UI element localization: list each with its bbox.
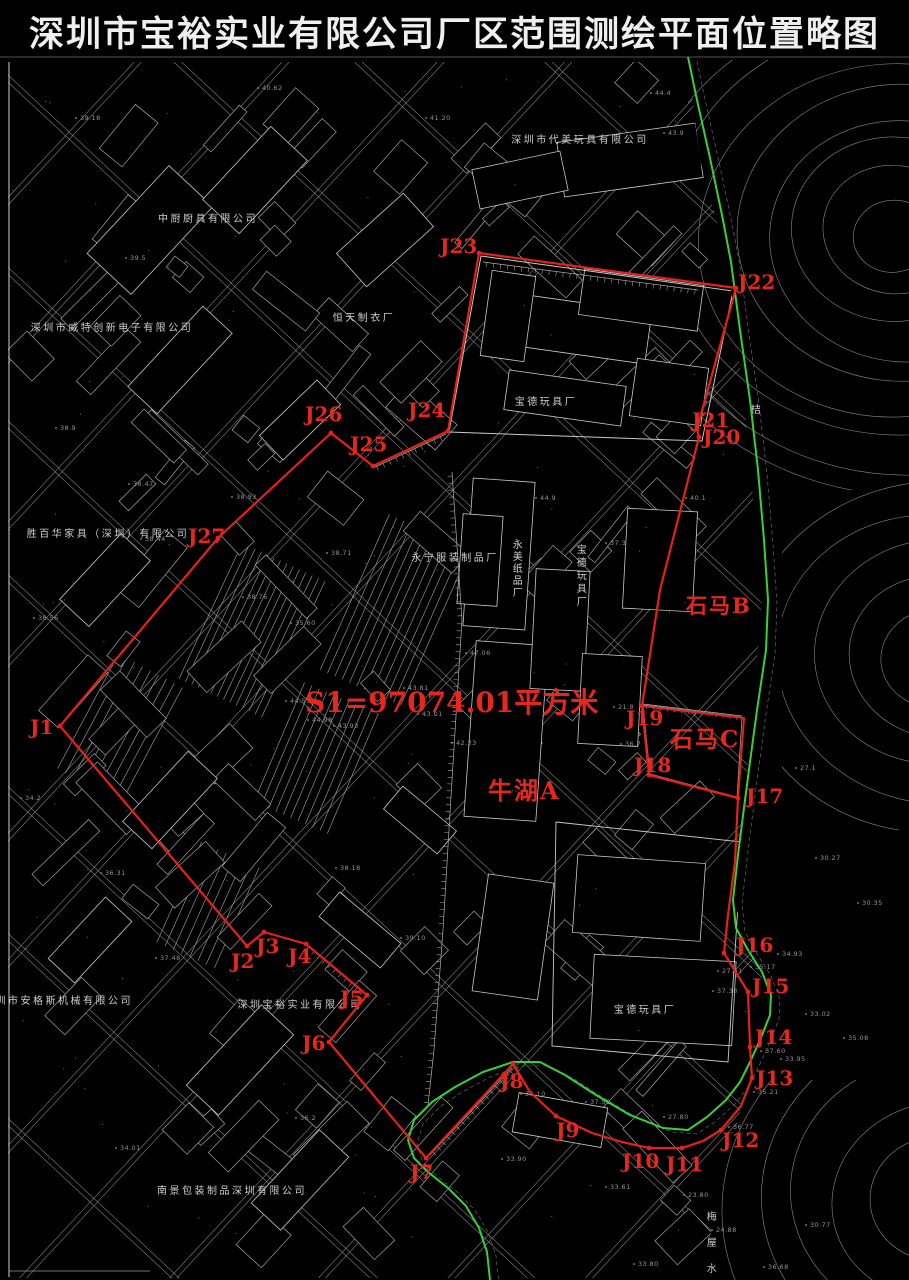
boundary-point-label-J17: J17 [744,784,783,808]
svg-text:33.90: 33.90 [506,1155,527,1163]
svg-text:30.77: 30.77 [810,1221,831,1229]
svg-text:33.02: 33.02 [810,1010,831,1018]
boundary-point-label-J9: J9 [554,1118,579,1142]
boundary-point-label-J25: J25 [348,432,387,456]
boundary-point-label-J21: J21 [690,408,729,432]
svg-text:43.93: 43.93 [338,722,359,730]
company-label: 宝德玩具厂 [515,395,578,408]
company-label: 梅屋水 [707,1210,720,1275]
boundary-point-label-J19: J19 [624,706,663,730]
svg-text:38.71: 38.71 [331,549,352,557]
vertex-J25 [371,464,376,469]
svg-text:34.93: 34.93 [782,950,803,958]
company-label: 永宁服装制品厂 [411,551,499,564]
boundary-point-label-J26: J26 [303,402,342,426]
svg-text:35.60: 35.60 [295,619,316,627]
vertex-J13 [750,1076,755,1081]
vertex-J14 [748,1045,753,1050]
boundary-point-label-J12: J12 [720,1128,759,1152]
vertex-J6 [327,1040,332,1045]
svg-text:38.9: 38.9 [60,424,76,432]
svg-text:36.56: 36.56 [38,614,59,622]
svg-text:40.62: 40.62 [262,84,283,92]
svg-text:36.31: 36.31 [105,869,126,877]
company-label: 永美纸品厂 [513,538,526,599]
svg-text:34.01: 34.01 [120,1144,141,1152]
svg-text:43.9: 43.9 [668,129,684,137]
svg-text:30.35: 30.35 [862,899,883,907]
vertex-J2 [245,944,250,949]
boundary-point-label-J4: J4 [286,944,311,968]
svg-text:39.5: 39.5 [130,254,146,262]
boundary-point-label-J13: J13 [754,1066,793,1090]
boundary-point-label-J6: J6 [300,1031,325,1055]
svg-text:33.95: 33.95 [785,1055,806,1063]
svg-text:35.08: 35.08 [848,1034,869,1042]
svg-text:33.80: 33.80 [638,1260,659,1268]
region-label: 石马B [685,593,752,618]
svg-text:34.2: 34.2 [25,794,41,802]
svg-text:36.68: 36.68 [768,1263,789,1271]
boundary-point-label-J16: J16 [734,933,773,957]
svg-text:27.1: 27.1 [800,764,816,772]
vertex-J8 [511,1062,516,1067]
company-label: 深圳市安格斯机械有限公司 [0,994,133,1007]
region-label: 石马C [669,726,740,753]
boundary-point-label-J1: J1 [28,715,53,739]
svg-text:38.47: 38.47 [133,480,154,488]
boundary-point-label-J27: J27 [186,524,225,548]
svg-text:36.7: 36.7 [625,740,641,748]
svg-text:39.18: 39.18 [80,114,101,122]
boundary-point-label-J3: J3 [254,934,279,958]
svg-text:38.18: 38.18 [340,864,361,872]
boundary-point-label-J24: J24 [406,398,445,422]
area-annotation: S1=97074.01平方米 [305,686,598,719]
boundary-point-label-J15: J15 [750,974,789,998]
company-label: 中厨厨具有限公司 [158,212,258,225]
svg-text:44.9: 44.9 [540,494,556,502]
svg-text:44.4: 44.4 [655,89,671,97]
vertex-J17 [736,796,741,801]
vertex-J15 [746,990,751,995]
company-label: 桔 [751,403,764,416]
svg-text:38.93: 38.93 [236,493,257,501]
svg-text:23.80: 23.80 [688,1191,709,1199]
boundary-point-label-J11: J11 [664,1152,703,1176]
company-label: 深圳市代美玩具有限公司 [511,133,649,146]
boundary-point-label-J7: J7 [408,1160,433,1184]
boundary-point-label-J23: J23 [438,234,477,258]
boundary-point-label-J8: J8 [498,1069,523,1093]
svg-text:33.61: 33.61 [610,1183,631,1191]
vertex-J24 [446,429,451,434]
company-label: 恒天制衣厂 [333,311,396,324]
map-canvas: 44.5544.9843.9338.4738.9338.4438.7138.76… [0,0,909,1280]
svg-text:47.06: 47.06 [470,649,491,657]
company-label: 宝德玩具厂 [614,1003,677,1016]
svg-text:37.3: 37.3 [610,539,626,547]
boundary-point-label-J22: J22 [736,270,775,294]
svg-text:37.38: 37.38 [717,987,738,995]
svg-text:42.23: 42.23 [456,739,477,747]
svg-text:37.48: 37.48 [160,954,181,962]
svg-text:41.20: 41.20 [430,114,451,122]
company-label: 宝德玩具厂 [577,543,590,608]
vertex-J5 [365,993,370,998]
svg-text:40.1: 40.1 [690,494,706,502]
svg-text:38.76: 38.76 [247,593,268,601]
vertex-J16 [722,951,727,956]
vertex-J23 [477,251,482,256]
company-label: 南景包装制品深圳有限公司 [157,1184,307,1197]
company-label: 深圳市威特创新电子有限公司 [31,321,194,334]
svg-text:24.88: 24.88 [716,1226,737,1234]
boundary-point-label-J2: J2 [229,949,254,973]
company-label: 胜百华家具（深圳）有限公司 [27,527,190,540]
svg-text:39.10: 39.10 [405,934,426,942]
boundary-point-label-J5: J5 [338,986,363,1010]
boundary-point-label-J18: J18 [632,753,671,777]
vertex-J1 [58,724,63,729]
region-label: 牛湖A [488,776,561,805]
boundary-point-label-J14: J14 [753,1025,792,1049]
svg-text:30.27: 30.27 [820,854,841,862]
vertex-J26 [329,431,334,436]
screenshot-root: 深圳市宝裕实业有限公司厂区范围测绘平面位置略图 44.5544.9843.933… [0,0,909,1280]
vertex-J20 [697,435,702,440]
svg-text:36.2: 36.2 [300,1114,316,1122]
svg-text:27.80: 27.80 [668,1113,689,1121]
vertex-J11 [680,1146,685,1151]
boundary-point-label-J10: J10 [620,1149,659,1173]
